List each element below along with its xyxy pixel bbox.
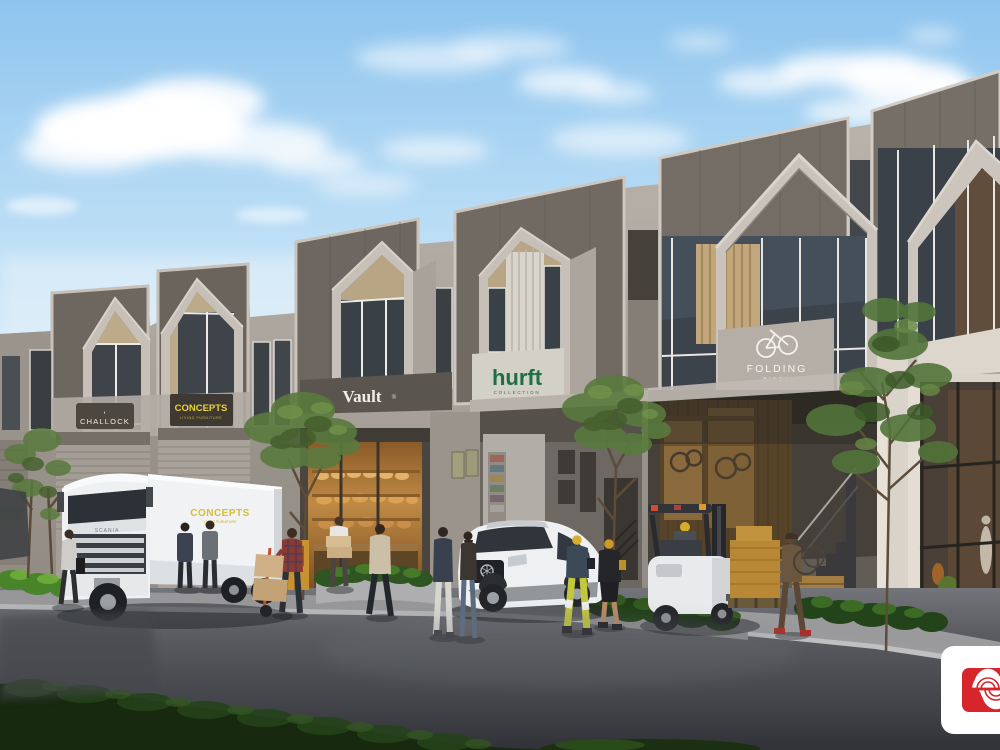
svg-text:FOLDING: FOLDING — [747, 363, 808, 375]
svg-text:hurft: hurft — [492, 365, 543, 390]
svg-text:◐: ◐ — [103, 410, 106, 416]
svg-text:CONCEPTS: CONCEPTS — [190, 508, 250, 519]
svg-text:CONCEPTS: CONCEPTS — [175, 403, 228, 414]
svg-text:COLLECTION: COLLECTION — [494, 390, 541, 395]
svg-text:LIVING FURNITURE: LIVING FURNITURE — [180, 416, 222, 420]
svg-text:CHALLOCK: CHALLOCK — [80, 417, 130, 426]
svg-text:SCANIA: SCANIA — [95, 528, 120, 534]
svg-text:Vault: Vault — [342, 387, 381, 406]
svg-text:®: ® — [392, 394, 397, 401]
